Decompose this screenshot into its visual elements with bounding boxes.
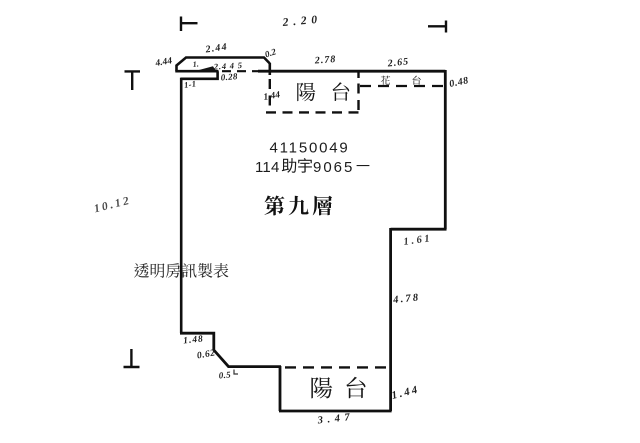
svg-text:2.65: 2.65 <box>386 56 410 69</box>
svg-text:2.4 4 5: 2.4 4 5 <box>213 60 243 72</box>
svg-text:2.78: 2.78 <box>313 54 336 67</box>
svg-text:114: 114 <box>255 159 280 176</box>
svg-text:1.: 1. <box>192 59 199 69</box>
svg-text:0.5: 0.5 <box>218 369 231 380</box>
svg-text:9065: 9065 <box>313 159 354 176</box>
svg-text:0.28: 0.28 <box>220 71 238 82</box>
svg-text:1-1: 1-1 <box>183 78 197 90</box>
svg-text:41150049: 41150049 <box>270 140 350 157</box>
